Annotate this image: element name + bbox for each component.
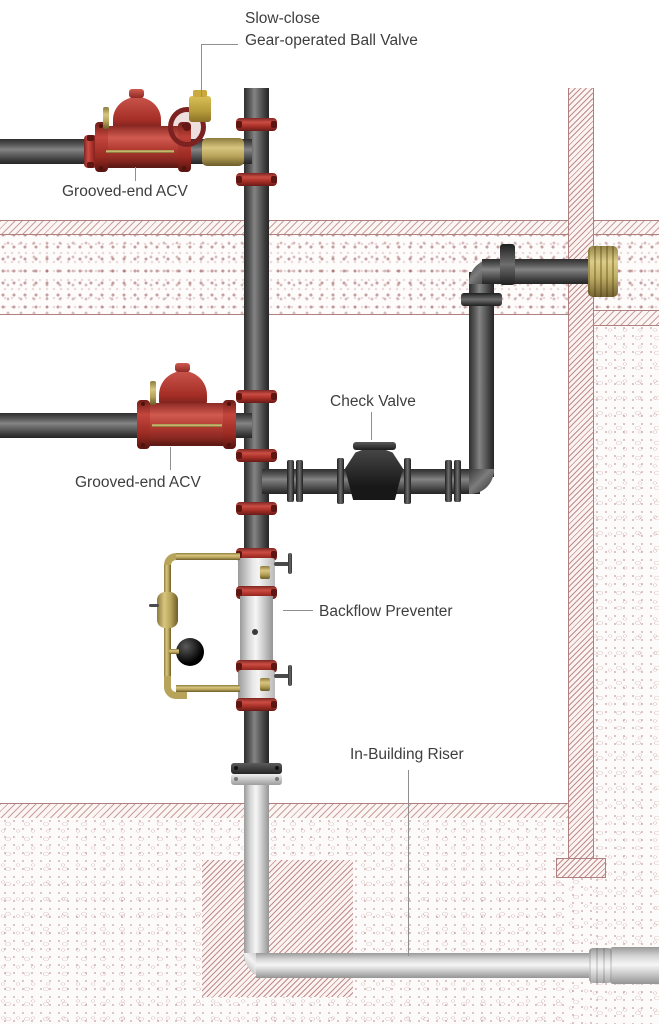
acv-pilot-fitting xyxy=(103,107,109,129)
leader-backflow xyxy=(283,610,313,611)
grooved-coupling xyxy=(236,502,277,515)
floor-slab-hatch xyxy=(0,220,659,235)
check-valve-body xyxy=(345,446,403,500)
ball-valve-actuator xyxy=(189,96,211,122)
pipe-flange xyxy=(454,460,461,502)
riser-flange-silver xyxy=(231,774,282,785)
bolted-coupling xyxy=(461,293,502,306)
label-ball-valve: Slow-close Gear-operated Ball Valve xyxy=(245,8,418,52)
acv-flange xyxy=(137,400,150,449)
bypass-pipe-top xyxy=(176,553,240,560)
bell-joint-hub xyxy=(589,948,612,983)
label-acv-top: Grooved-end ACV xyxy=(62,181,188,203)
gear-ball-valve-body xyxy=(202,138,244,166)
floor-slab-bottom-line xyxy=(0,314,659,315)
piping-diagram: Slow-close Gear-operated Ball Valve Groo… xyxy=(0,0,659,1024)
label-ball-valve-line2: Gear-operated Ball Valve xyxy=(245,30,418,52)
service-main-pipe xyxy=(610,947,659,984)
acv-flange xyxy=(223,400,236,449)
check-valve-flange xyxy=(337,458,344,504)
acv-flange xyxy=(95,122,108,172)
acv-top-dome xyxy=(113,97,161,129)
pipe-flange xyxy=(287,460,294,502)
leader-acv-top xyxy=(135,167,136,181)
grade-line-exterior xyxy=(592,310,659,326)
grooved-coupling xyxy=(236,118,277,131)
leader-check-valve xyxy=(371,412,372,440)
pipe-flange xyxy=(296,460,303,502)
bypass-gauge-ball xyxy=(176,638,204,666)
test-valve-handle-bar xyxy=(288,665,292,686)
grooved-coupling xyxy=(236,173,277,186)
check-valve-flange xyxy=(404,458,411,504)
wall-sleeve-fitting xyxy=(588,246,618,297)
wall-footing xyxy=(556,858,606,878)
check-valve-cap xyxy=(353,442,396,450)
bolted-coupling xyxy=(500,244,515,285)
label-riser: In-Building Riser xyxy=(350,744,464,766)
test-valve-handle-bar xyxy=(288,553,292,574)
backflow-bottom-brass-fitting xyxy=(260,678,270,691)
label-check-valve: Check Valve xyxy=(330,391,416,413)
riser-flange-dark xyxy=(231,763,282,774)
label-acv-mid: Grooved-end ACV xyxy=(75,472,201,494)
acv-pilot-tube xyxy=(152,424,222,427)
acv-mid-cap xyxy=(175,363,190,372)
leader-ball-valve-v xyxy=(201,44,202,97)
bypass-strainer-handle xyxy=(149,604,159,607)
leader-ball-valve-h xyxy=(201,44,238,45)
underground-service-pipe xyxy=(256,953,592,978)
backflow-flange-ring xyxy=(236,698,277,711)
bypass-pipe-bottom xyxy=(176,685,240,692)
grooved-coupling xyxy=(236,449,277,462)
backflow-test-port xyxy=(252,629,258,635)
acv-pilot-tube xyxy=(106,150,174,153)
soil-exterior xyxy=(592,317,659,1024)
acv-pilot-fitting xyxy=(150,381,156,405)
grooved-coupling xyxy=(236,390,277,403)
bypass-strainer xyxy=(157,592,178,628)
label-backflow: Backflow Preventer xyxy=(319,601,453,623)
ball-valve-actuator-cap xyxy=(193,90,207,97)
leader-acv-mid xyxy=(170,447,171,470)
pipe-flange xyxy=(445,460,452,502)
leader-riser xyxy=(408,770,409,956)
backflow-top-brass-fitting xyxy=(260,566,270,579)
bypass-ball-stem xyxy=(169,649,179,654)
acv-top-cap xyxy=(129,89,144,98)
in-building-riser-pipe xyxy=(244,785,269,961)
label-ball-valve-line1: Slow-close xyxy=(245,8,418,30)
elbow-lower-right xyxy=(469,469,494,494)
exterior-wall xyxy=(568,88,594,858)
acv-mid-dome xyxy=(159,371,207,405)
